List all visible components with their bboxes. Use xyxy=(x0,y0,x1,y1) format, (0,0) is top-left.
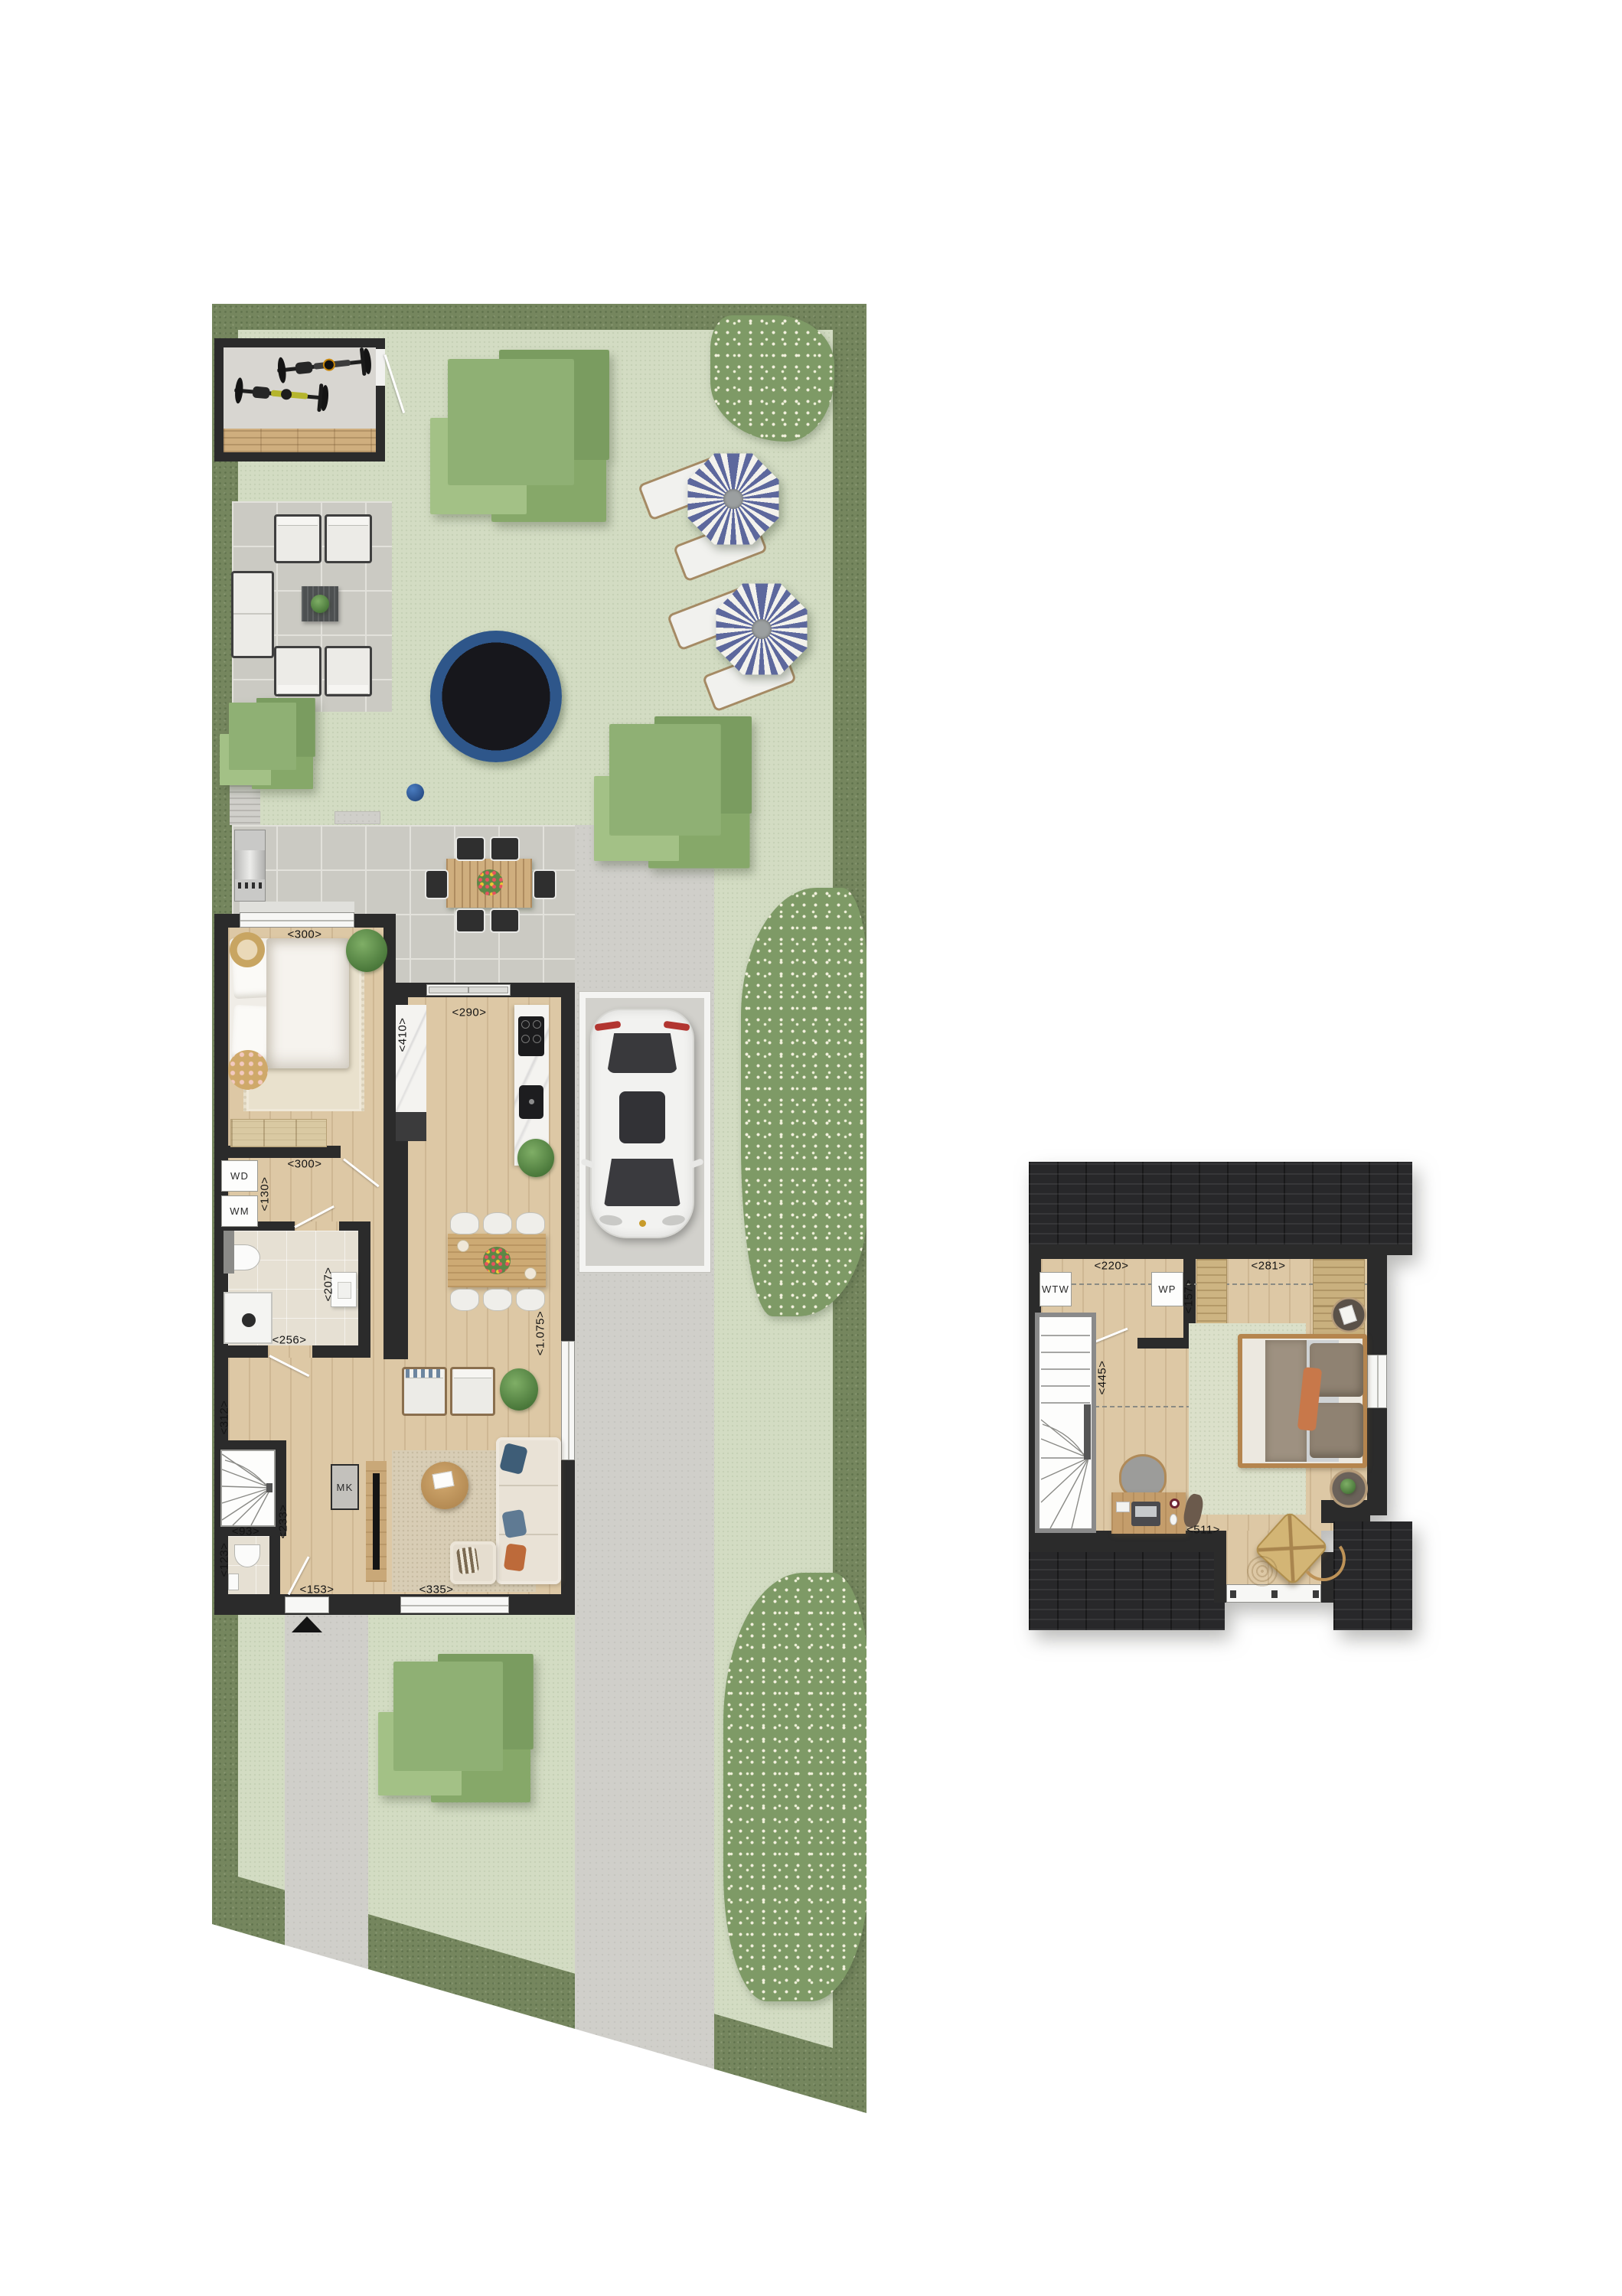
first-floor-plan: WTW WP xyxy=(0,0,1622,2296)
upper-staircase xyxy=(1035,1313,1096,1533)
dormer-window xyxy=(1226,1584,1321,1603)
roof-bottom-right xyxy=(1333,1521,1412,1630)
notebook xyxy=(1116,1502,1130,1512)
desk xyxy=(1111,1492,1186,1534)
roof-top xyxy=(1029,1162,1412,1244)
upper-bed xyxy=(1238,1334,1367,1468)
heat-pump-unit: WP xyxy=(1151,1272,1183,1306)
heat-recovery-label: WTW xyxy=(1042,1283,1069,1295)
nightstand-tray xyxy=(1331,1297,1366,1332)
roof-bottom-left xyxy=(1029,1552,1225,1630)
dim-tech-depth: <157> xyxy=(1183,1279,1195,1313)
heat-recovery-unit: WTW xyxy=(1039,1272,1072,1306)
dim-landing-width: <220> xyxy=(1094,1261,1128,1272)
mug xyxy=(1170,1499,1180,1508)
wall xyxy=(1029,1244,1367,1259)
laptop xyxy=(1131,1502,1160,1526)
nightstand-tray xyxy=(1330,1469,1368,1508)
heat-pump-label: WP xyxy=(1158,1283,1176,1295)
dim-upper-bedroom-length: <511> xyxy=(1186,1525,1220,1536)
dim-upper-bedroom-width: <281> xyxy=(1251,1261,1285,1272)
side-table xyxy=(1245,1554,1280,1589)
side-window xyxy=(1367,1355,1387,1408)
wall xyxy=(1137,1338,1196,1349)
dim-stair-depth: <445> xyxy=(1097,1360,1108,1394)
mouse xyxy=(1170,1514,1177,1525)
wall xyxy=(1214,1552,1226,1603)
